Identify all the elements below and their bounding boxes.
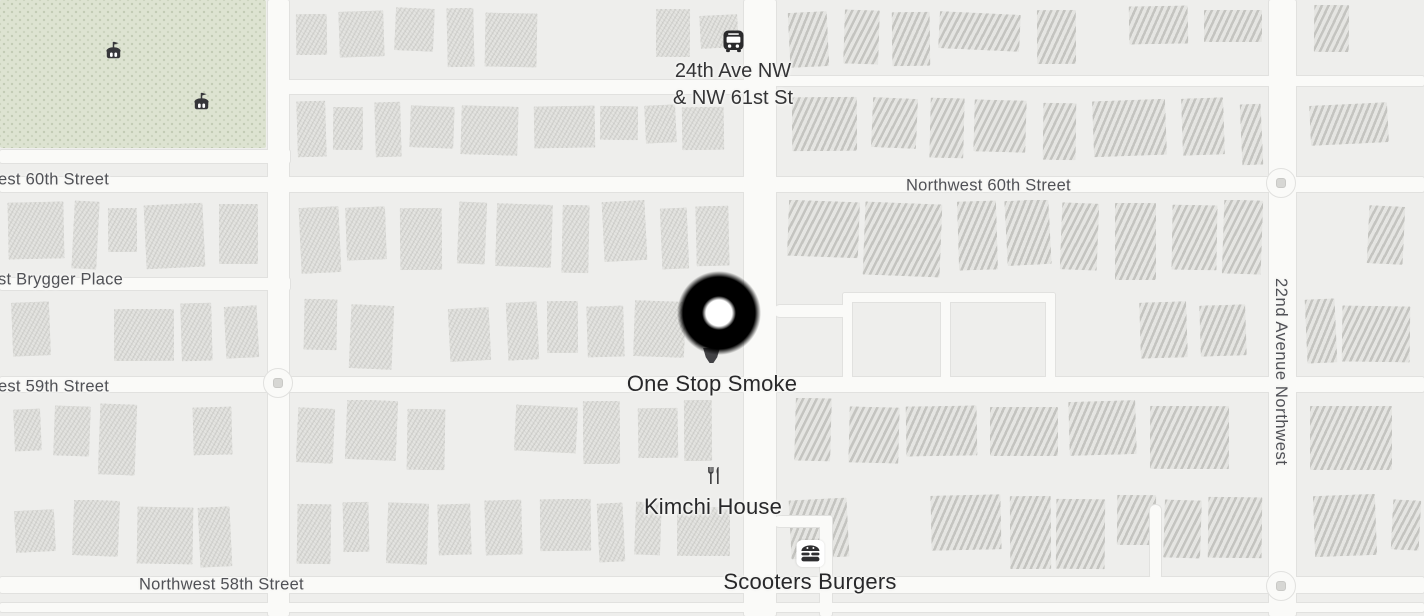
restaurant-icon: [644, 465, 782, 491]
transit-stop-name-line1: 24th Ave NW: [673, 58, 793, 85]
roundabout: [1266, 571, 1296, 601]
roundabout: [1266, 168, 1296, 198]
street-label-nw-58th: Northwest 58th Street: [139, 576, 304, 595]
carousel-icon: [102, 40, 125, 63]
road-segment: [941, 293, 950, 381]
street-label-22nd-ave: 22nd Avenue Northwest: [1271, 278, 1290, 466]
carousel-icon: [190, 91, 213, 114]
road-segment: [0, 603, 1424, 612]
poi-scooters-burgers[interactable]: Scooters Burgers: [723, 540, 896, 595]
street-label-brygger-place: st Brygger Place: [0, 271, 123, 290]
poi-label: One Stop Smoke: [627, 371, 797, 397]
bus-icon: [720, 28, 747, 55]
transit-stop[interactable]: 24th Ave NW & NW 61st St: [673, 28, 793, 112]
map-canvas[interactable]: est 60th Street st Brygger Place est 59t…: [0, 0, 1424, 616]
road-segment: [774, 76, 1424, 86]
road-segment: [774, 305, 848, 317]
poi-kimchi-house[interactable]: Kimchi House: [644, 465, 782, 520]
poi-label: Kimchi House: [644, 494, 782, 520]
street-label-west-60th: est 60th Street: [0, 171, 109, 190]
roundabout: [263, 368, 293, 398]
road-segment: [0, 150, 290, 163]
road-segment: [843, 293, 852, 381]
selection-marker[interactable]: [673, 267, 765, 359]
burger-icon: [796, 540, 824, 567]
poi-one-stop-smoke[interactable]: One Stop Smoke: [627, 371, 797, 397]
road-segment: [1150, 505, 1161, 581]
road-segment: [1046, 293, 1055, 381]
road-segment: [0, 177, 1424, 192]
street-label-west-59th: est 59th Street: [0, 378, 109, 397]
transit-stop-name-line2: & NW 61st St: [673, 85, 793, 112]
street-label-nw-60th: Northwest 60th Street: [906, 177, 1071, 196]
poi-label: Scooters Burgers: [723, 569, 896, 595]
